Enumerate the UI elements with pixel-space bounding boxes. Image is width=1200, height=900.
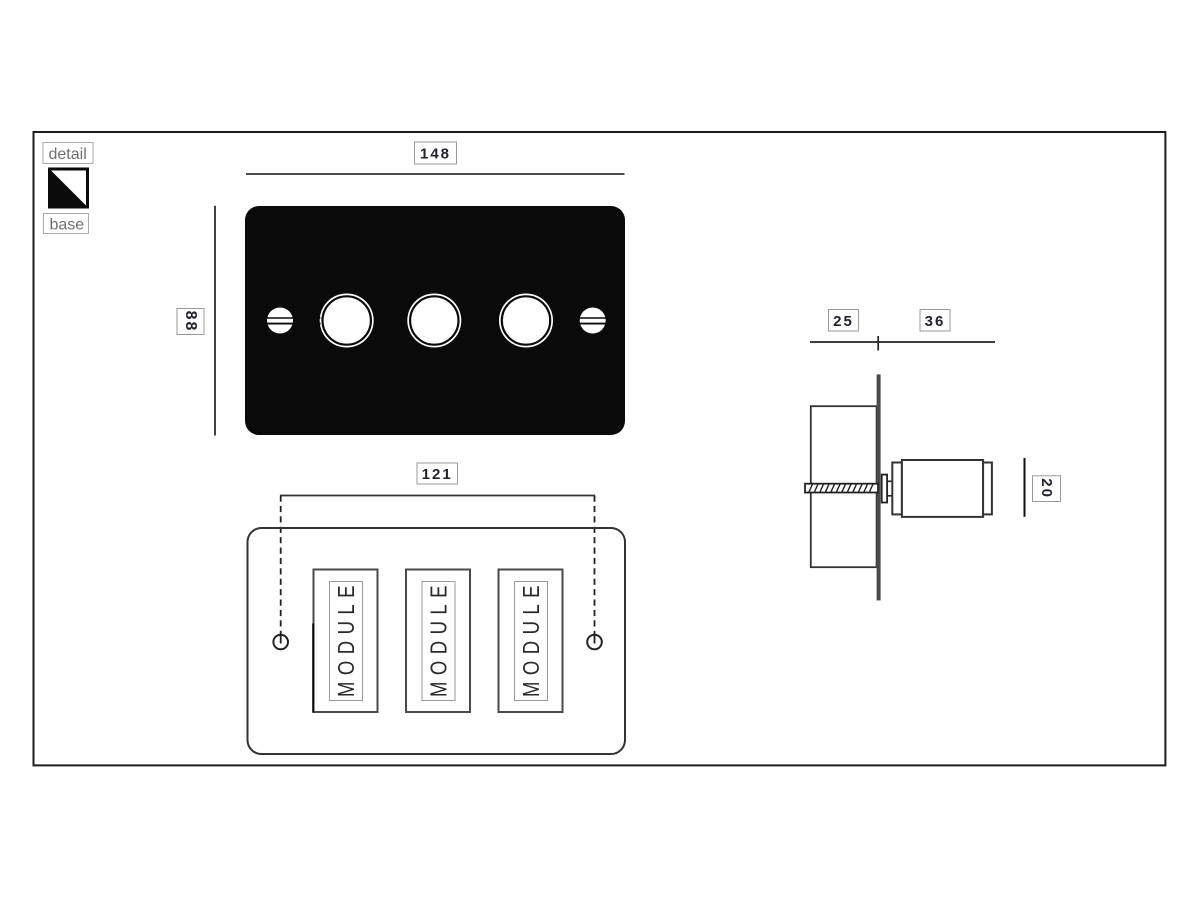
svg-text:20: 20	[1038, 478, 1055, 499]
svg-text:36: 36	[925, 313, 946, 330]
svg-text:25: 25	[833, 313, 854, 330]
svg-text:MODULE: MODULE	[518, 579, 544, 697]
svg-text:base: base	[50, 217, 85, 234]
svg-text:detail: detail	[49, 146, 87, 163]
svg-text:MODULE: MODULE	[425, 579, 451, 697]
svg-text:148: 148	[420, 146, 451, 163]
svg-text:88: 88	[182, 311, 199, 333]
svg-text:MODULE: MODULE	[333, 579, 359, 697]
svg-text:121: 121	[422, 466, 453, 483]
